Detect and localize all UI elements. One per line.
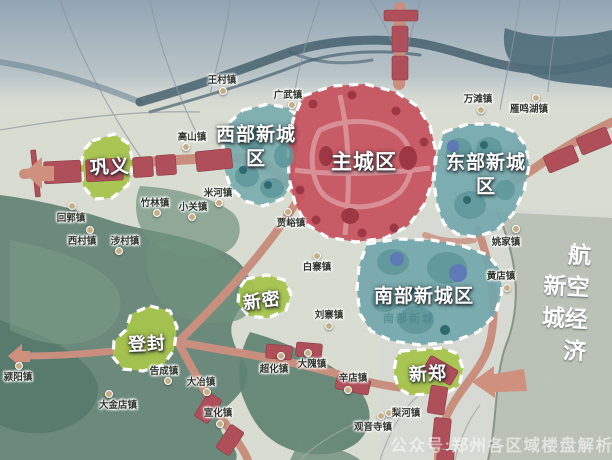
watermark-text: 公众号:郑州各区域楼盘解析 — [391, 432, 612, 456]
map-artwork — [0, 0, 612, 460]
planning-map: 王村镇广武镇高山镇米河镇竹林镇小关镇回郭镇贾峪镇西村镇涉村镇颍阳镇白寨镇刘寨镇超… — [0, 0, 612, 460]
